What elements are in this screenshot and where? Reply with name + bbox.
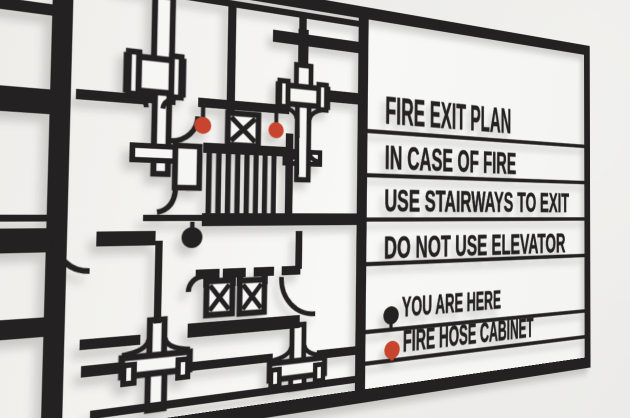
svg-text:DO NOT USE ELEVATOR: DO NOT USE ELEVATOR <box>384 228 566 265</box>
svg-text:FIRE EXIT PLAN: FIRE EXIT PLAN <box>385 89 511 141</box>
svg-text:IN CASE OF FIRE: IN CASE OF FIRE <box>385 139 517 181</box>
svg-text:USE STAIRWAYS TO EXIT: USE STAIRWAYS TO EXIT <box>384 183 569 218</box>
